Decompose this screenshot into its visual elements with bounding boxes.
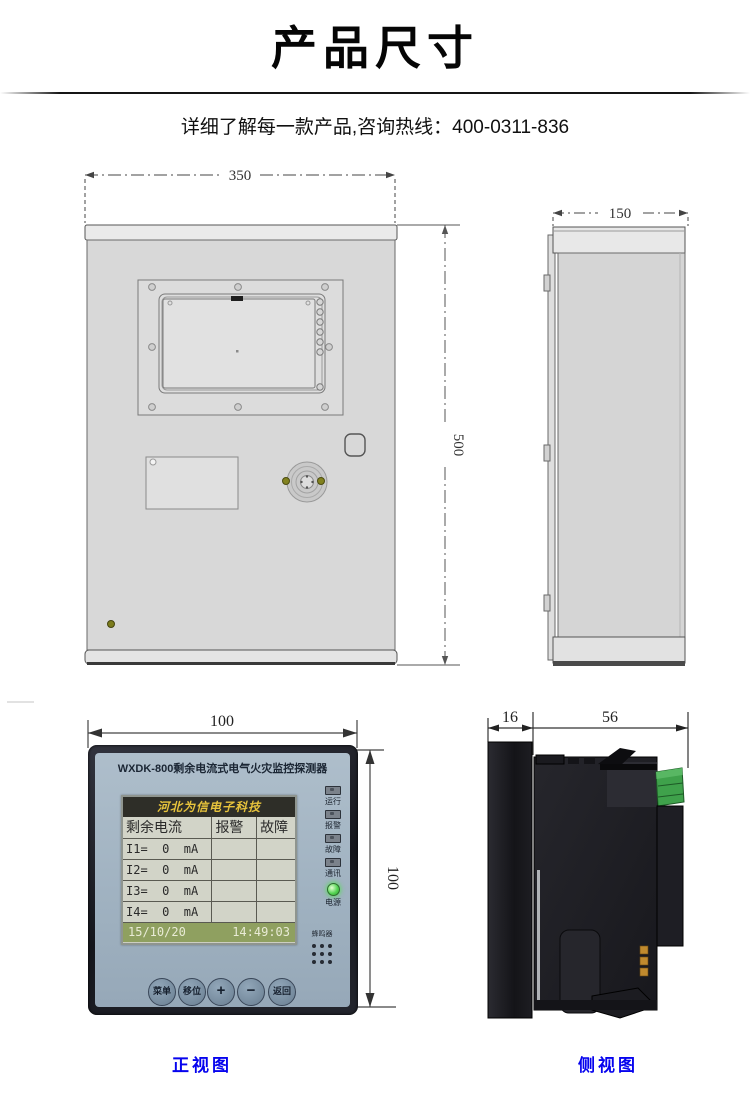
dim-100-top-label: 100 — [210, 713, 234, 730]
plus-button[interactable]: + — [207, 978, 235, 1006]
lcd-brand-banner: 河北为信电子科技 — [123, 797, 295, 817]
lcd-cell — [212, 902, 257, 923]
lcd-cell — [257, 902, 295, 923]
front-view-caption: 正视图 — [172, 1051, 232, 1076]
run-led — [325, 786, 341, 795]
buzzer-label: 蜂鸣器 — [304, 931, 340, 939]
alarm-led-label: 报警 — [325, 821, 341, 830]
return-button[interactable]: 返回 — [268, 978, 296, 1006]
lcd-cell — [257, 839, 295, 860]
detector-side-view: 16 56 — [470, 700, 750, 1030]
power-led-label: 电源 — [325, 898, 341, 907]
alarm-led — [325, 810, 341, 819]
dim-150-label: 150 — [609, 206, 632, 222]
page-title: 产品尺寸 — [0, 12, 750, 78]
fault-led-label: 故障 — [325, 845, 341, 854]
lcd-screen: 河北为信电子科技 剩余电流 报警 故障 I1= 0 mA I2= 0 mA I3… — [121, 795, 297, 945]
display-notch — [231, 296, 243, 301]
lock-led-left — [283, 478, 290, 485]
lcd-cell — [212, 839, 257, 860]
comm-led-label: 通讯 — [325, 869, 341, 878]
detector-side-photo — [488, 742, 684, 1018]
lcd-col-header: 故障 — [257, 817, 295, 839]
watermark-dash — [7, 701, 34, 703]
hinge — [544, 595, 550, 611]
run-led-label: 运行 — [325, 797, 341, 806]
buzzer: 蜂鸣器 — [304, 931, 340, 966]
minus-button[interactable]: − — [237, 978, 265, 1006]
power-led — [327, 883, 340, 896]
cabinet-side-drawing: 150 — [480, 155, 750, 685]
lcd-table: 剩余电流 报警 故障 I1= 0 mA I2= 0 mA I3= 0 mA I4… — [123, 817, 295, 923]
front-bezel-side — [488, 742, 532, 1018]
header-divider — [0, 92, 750, 94]
lock-led-right — [318, 478, 325, 485]
lcd-cell: I1= 0 mA — [123, 839, 212, 860]
dim-100-top: 100 — [80, 708, 380, 750]
comm-led — [325, 858, 341, 867]
lcd-status-bar: 15/10/20 14:49:03 — [123, 923, 295, 942]
lcd-cell — [212, 881, 257, 902]
side-view-caption: 侧视图 — [578, 1051, 638, 1076]
dim-100-right: 100 — [352, 738, 400, 1018]
lcd-time: 14:49:03 — [232, 923, 290, 942]
hinge — [544, 445, 550, 461]
terminal-pins — [640, 946, 648, 976]
cabinet-side-body — [544, 227, 685, 666]
lcd-cell: I4= 0 mA — [123, 902, 212, 923]
lcd-cell — [212, 860, 257, 881]
menu-button[interactable]: 菜单 — [148, 978, 176, 1006]
detector-face: WXDK-800剩余电流式电气火灾监控探测器 河北为信电子科技 剩余电流 报警 … — [95, 753, 350, 1007]
hinge — [544, 275, 550, 291]
dim-350-label: 350 — [229, 168, 252, 184]
shift-button[interactable]: 移位 — [178, 978, 206, 1006]
cabinet-corner-led — [108, 621, 115, 628]
lcd-col-header: 剩余电流 — [123, 817, 212, 839]
cabinet-label-plate — [146, 457, 238, 509]
detector-front-view: WXDK-800剩余电流式电气火灾监控探测器 河北为信电子科技 剩余电流 报警 … — [88, 745, 358, 1015]
dim-56-label: 56 — [602, 709, 618, 726]
fault-led — [325, 834, 341, 843]
cabinet-screen-bezel — [138, 280, 343, 415]
dim-100-right-label: 100 — [384, 866, 400, 890]
cabinet-front-drawing: 350 500 — [60, 155, 480, 685]
rear-block — [657, 806, 683, 946]
lcd-cell: I2= 0 mA — [123, 860, 212, 881]
status-led-column: 运行 报警 故障 通讯 电源 — [316, 786, 350, 911]
lcd-cell — [257, 860, 295, 881]
hotline-subtitle: 详细了解每一款产品,咨询热线：400-0311-836 — [0, 112, 750, 139]
product-dimensions-page: 产品尺寸 详细了解每一款产品,咨询热线：400-0311-836 350 500 — [0, 0, 750, 1097]
lcd-cell: I3= 0 mA — [123, 881, 212, 902]
dim-500-label: 500 — [450, 434, 466, 457]
lcd-col-header: 报警 — [212, 817, 257, 839]
lcd-date: 15/10/20 — [128, 923, 186, 942]
display-center-dot — [236, 350, 239, 353]
buzzer-holes — [304, 942, 340, 966]
detector-model-title: WXDK-800剩余电流式电气火灾监控探测器 — [95, 760, 350, 776]
lcd-cell — [257, 881, 295, 902]
dim-16-label: 16 — [502, 709, 518, 726]
